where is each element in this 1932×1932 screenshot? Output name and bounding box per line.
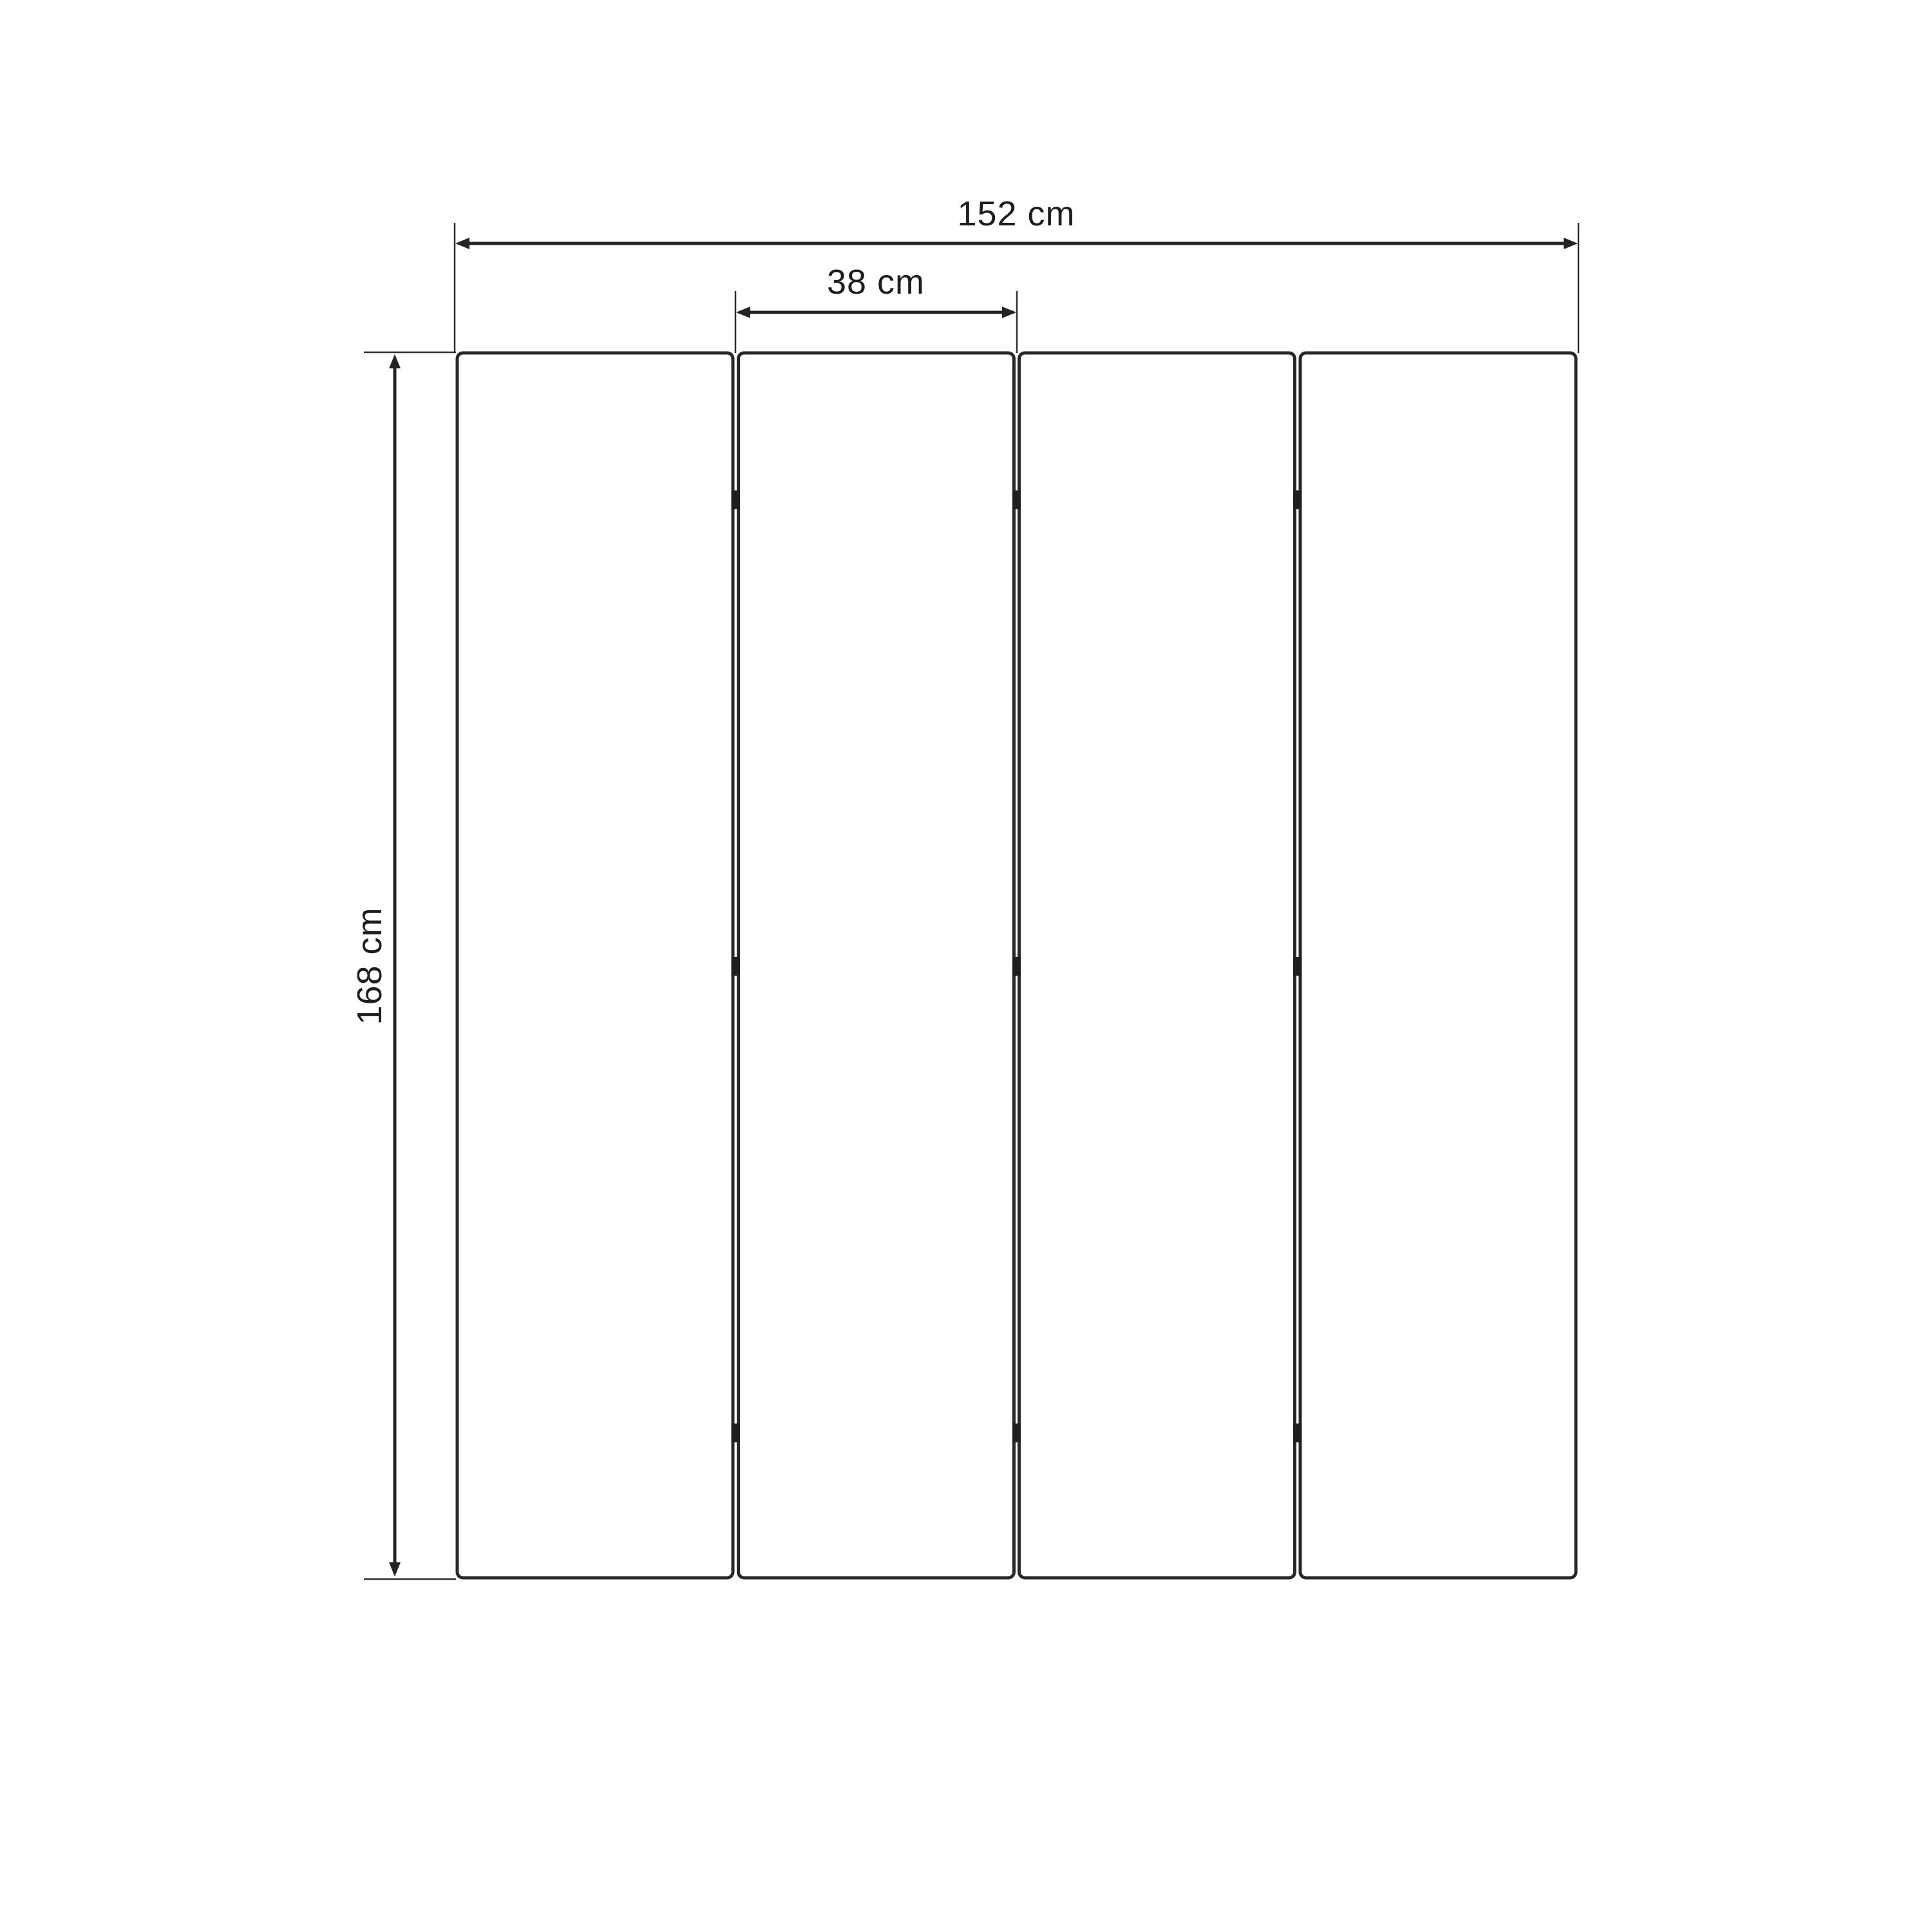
dimension-diagram: 152 cm 38 cm 168 cm [0,0,1932,1932]
hinge-mark [1293,491,1302,509]
hinge-mark [1012,1424,1021,1443]
arrowhead-right-icon [1002,307,1016,318]
panel-4 [1300,353,1576,1578]
hinge-mark [732,1424,740,1443]
panel-1 [457,353,733,1578]
hinge-mark [1012,491,1021,509]
dim-height: 168 cm [350,352,456,1579]
hinge-mark [1293,957,1302,976]
hinge-mark [732,491,740,509]
arrowhead-bottom-icon [389,1562,401,1577]
height-label: 168 cm [350,907,389,1025]
dim-panel-width: 38 cm [735,263,1017,353]
diagram-svg: 152 cm 38 cm 168 cm [0,0,1932,1932]
arrowhead-left-icon [455,238,469,249]
panel-width-label: 38 cm [827,263,925,301]
panel-2 [739,353,1014,1578]
arrowhead-top-icon [389,354,401,368]
total-width-label: 152 cm [957,194,1075,233]
hinge-mark [1012,957,1021,976]
arrowhead-left-icon [736,307,750,318]
panel-3 [1019,353,1295,1578]
arrowhead-right-icon [1564,238,1578,249]
hinge-mark [1293,1424,1302,1443]
hinge-mark [732,957,740,976]
